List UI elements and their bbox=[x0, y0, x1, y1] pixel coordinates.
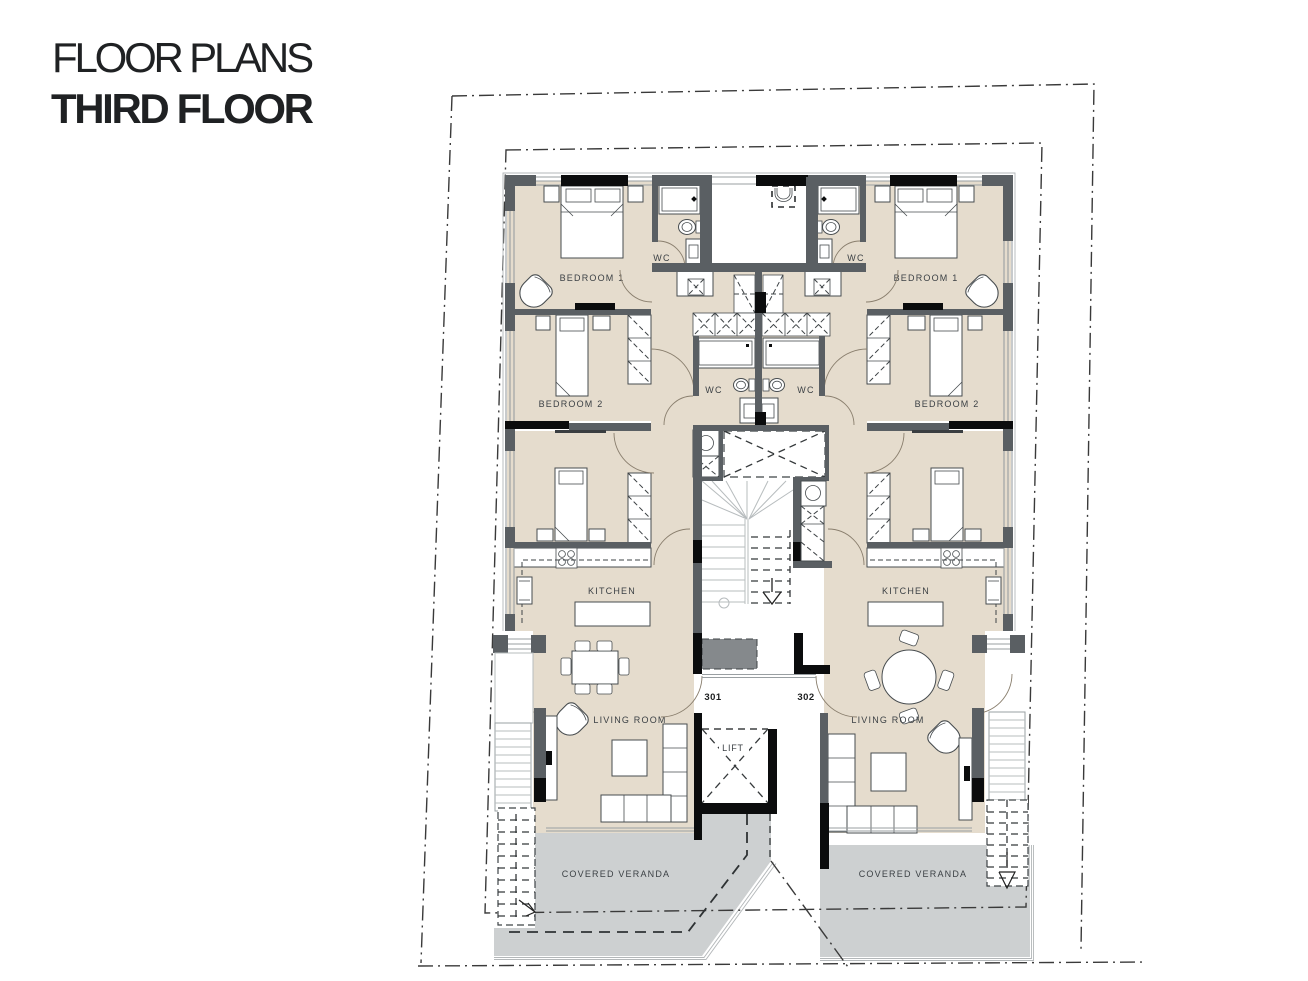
svg-text:302: 302 bbox=[797, 692, 814, 703]
svg-text:KITCHEN: KITCHEN bbox=[882, 586, 930, 596]
svg-text:BEDROOM 1: BEDROOM 1 bbox=[560, 273, 625, 283]
svg-text:LIFT: LIFT bbox=[722, 743, 744, 753]
svg-text:BEDROOM 2: BEDROOM 2 bbox=[539, 399, 604, 409]
svg-text:THIRD FLOOR: THIRD FLOOR bbox=[51, 85, 314, 132]
svg-text:BEDROOM 1: BEDROOM 1 bbox=[894, 273, 959, 283]
svg-text:FLOOR PLANS: FLOOR PLANS bbox=[52, 34, 313, 81]
svg-text:KITCHEN: KITCHEN bbox=[588, 586, 636, 596]
svg-text:WC: WC bbox=[705, 385, 722, 395]
svg-text:COVERED VERANDA: COVERED VERANDA bbox=[562, 869, 671, 879]
svg-text:301: 301 bbox=[704, 692, 722, 703]
svg-text:WC: WC bbox=[847, 253, 864, 263]
svg-text:WC: WC bbox=[797, 385, 814, 395]
svg-text:LIVING ROOM: LIVING ROOM bbox=[593, 715, 666, 725]
svg-text:LIVING ROOM: LIVING ROOM bbox=[851, 715, 924, 725]
svg-text:COVERED VERANDA: COVERED VERANDA bbox=[859, 869, 968, 879]
svg-text:WC: WC bbox=[653, 253, 670, 263]
svg-text:BEDROOM 2: BEDROOM 2 bbox=[915, 399, 980, 409]
